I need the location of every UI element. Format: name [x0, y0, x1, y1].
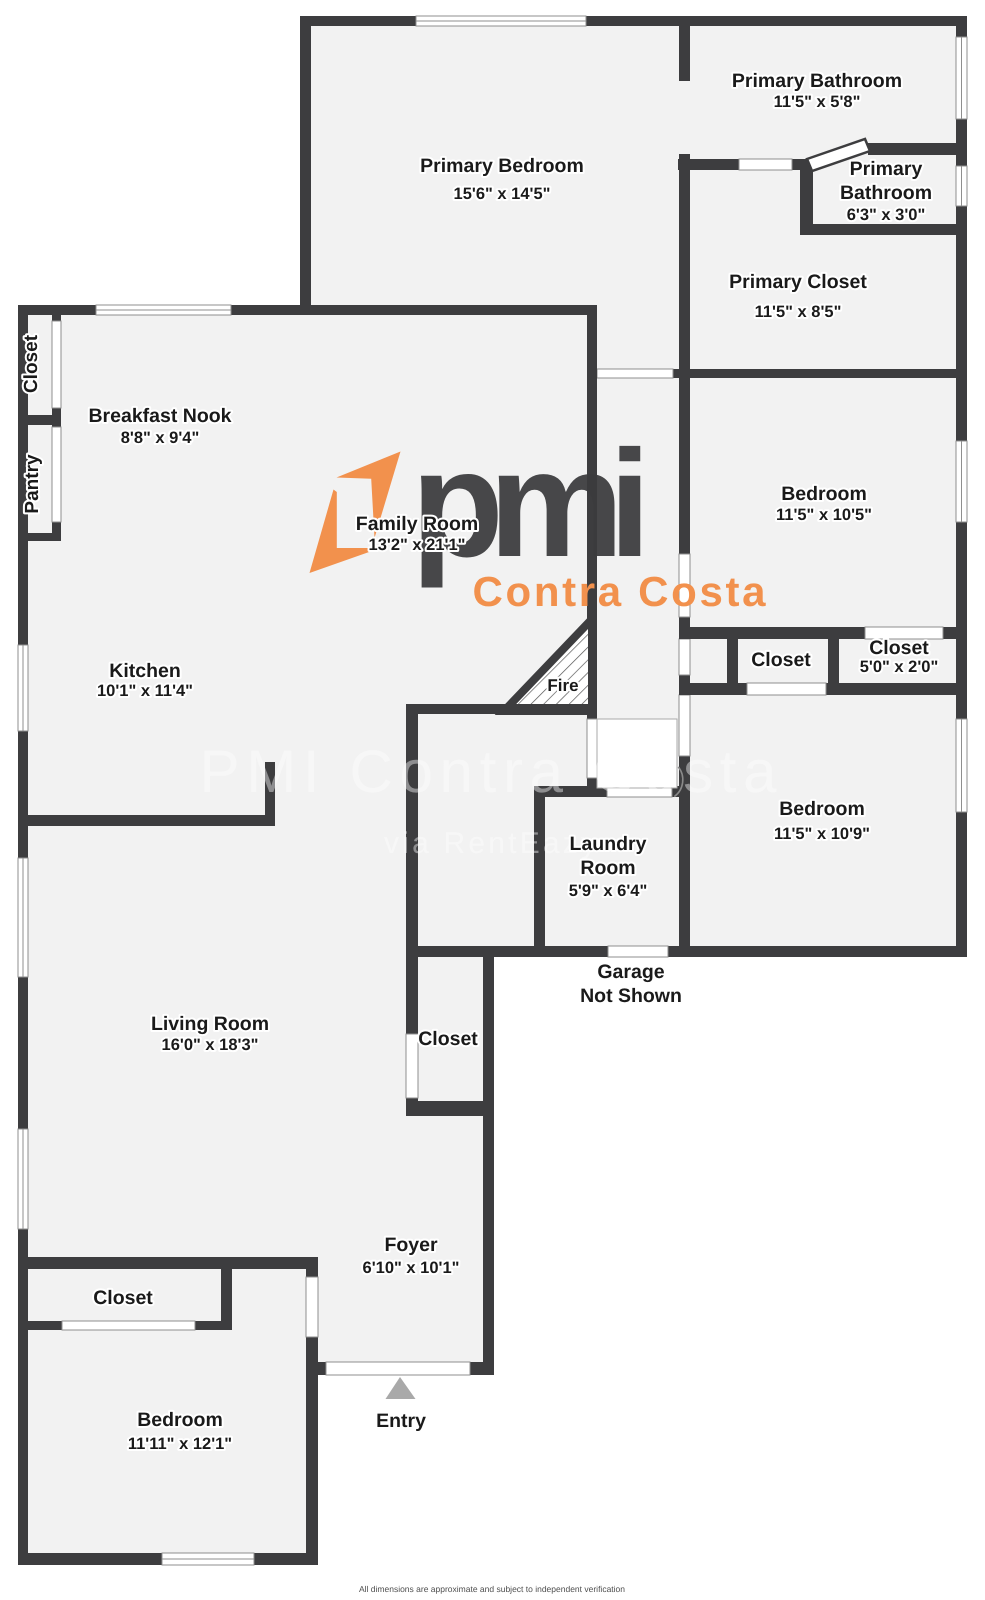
svg-text:pmi: pmi [411, 419, 651, 589]
svg-text:Kitchen: Kitchen [109, 660, 181, 682]
svg-text:Closet: Closet [21, 334, 42, 393]
svg-text:Garage: Garage [597, 961, 664, 983]
svg-text:Room: Room [580, 857, 635, 879]
svg-text:Not Shown: Not Shown [580, 985, 682, 1007]
svg-text:Primary Bedroom: Primary Bedroom [420, 155, 584, 177]
svg-text:Primary: Primary [850, 158, 923, 180]
svg-text:5'9" x 6'4": 5'9" x 6'4" [569, 882, 648, 900]
svg-text:11'5" x 10'9": 11'5" x 10'9" [774, 825, 870, 843]
svg-text:Living Room: Living Room [151, 1013, 269, 1035]
svg-text:10'1" x 11'4": 10'1" x 11'4" [97, 682, 193, 700]
svg-text:11'5" x 10'5": 11'5" x 10'5" [776, 506, 872, 524]
svg-text:6'10" x 10'1": 6'10" x 10'1" [363, 1259, 460, 1277]
svg-text:All dimensions are approximate: All dimensions are approximate and subje… [359, 1584, 625, 1594]
svg-text:Family Room: Family Room [356, 513, 478, 535]
svg-text:Fire: Fire [547, 676, 578, 695]
svg-text:via RentEazy: via RentEazy [384, 827, 596, 860]
svg-text:Pantry: Pantry [22, 454, 43, 514]
svg-text:Bedroom: Bedroom [779, 798, 865, 820]
svg-text:11'11" x 12'1": 11'11" x 12'1" [128, 1435, 232, 1453]
svg-text:Entry: Entry [376, 1410, 426, 1432]
svg-text:Contra Costa: Contra Costa [473, 568, 767, 615]
svg-text:Closet: Closet [418, 1028, 478, 1050]
svg-text:Closet: Closet [869, 637, 929, 659]
svg-text:Foyer: Foyer [384, 1234, 438, 1256]
svg-text:16'0" x 18'3": 16'0" x 18'3" [162, 1036, 259, 1054]
svg-text:Primary Closet: Primary Closet [729, 271, 867, 293]
svg-text:Breakfast Nook: Breakfast Nook [88, 405, 231, 427]
svg-text:Laundry: Laundry [570, 833, 647, 855]
svg-text:PMI Contra Costa: PMI Contra Costa [200, 738, 778, 805]
svg-text:15'6" x 14'5": 15'6" x 14'5" [454, 185, 551, 203]
svg-text:6'3" x 3'0": 6'3" x 3'0" [847, 206, 926, 224]
svg-text:Closet: Closet [93, 1287, 153, 1309]
svg-text:Bathroom: Bathroom [840, 182, 932, 204]
svg-text:Bedroom: Bedroom [781, 483, 867, 505]
svg-text:13'2" x 21'1": 13'2" x 21'1" [369, 536, 466, 554]
svg-text:11'5" x 5'8": 11'5" x 5'8" [774, 93, 861, 111]
svg-text:8'8" x 9'4": 8'8" x 9'4" [121, 429, 200, 447]
svg-text:Primary Bathroom: Primary Bathroom [732, 70, 902, 92]
svg-text:5'0" x 2'0": 5'0" x 2'0" [860, 658, 939, 676]
svg-text:Bedroom: Bedroom [137, 1409, 223, 1431]
svg-text:11'5" x 8'5": 11'5" x 8'5" [755, 303, 842, 321]
svg-text:Closet: Closet [751, 649, 811, 671]
